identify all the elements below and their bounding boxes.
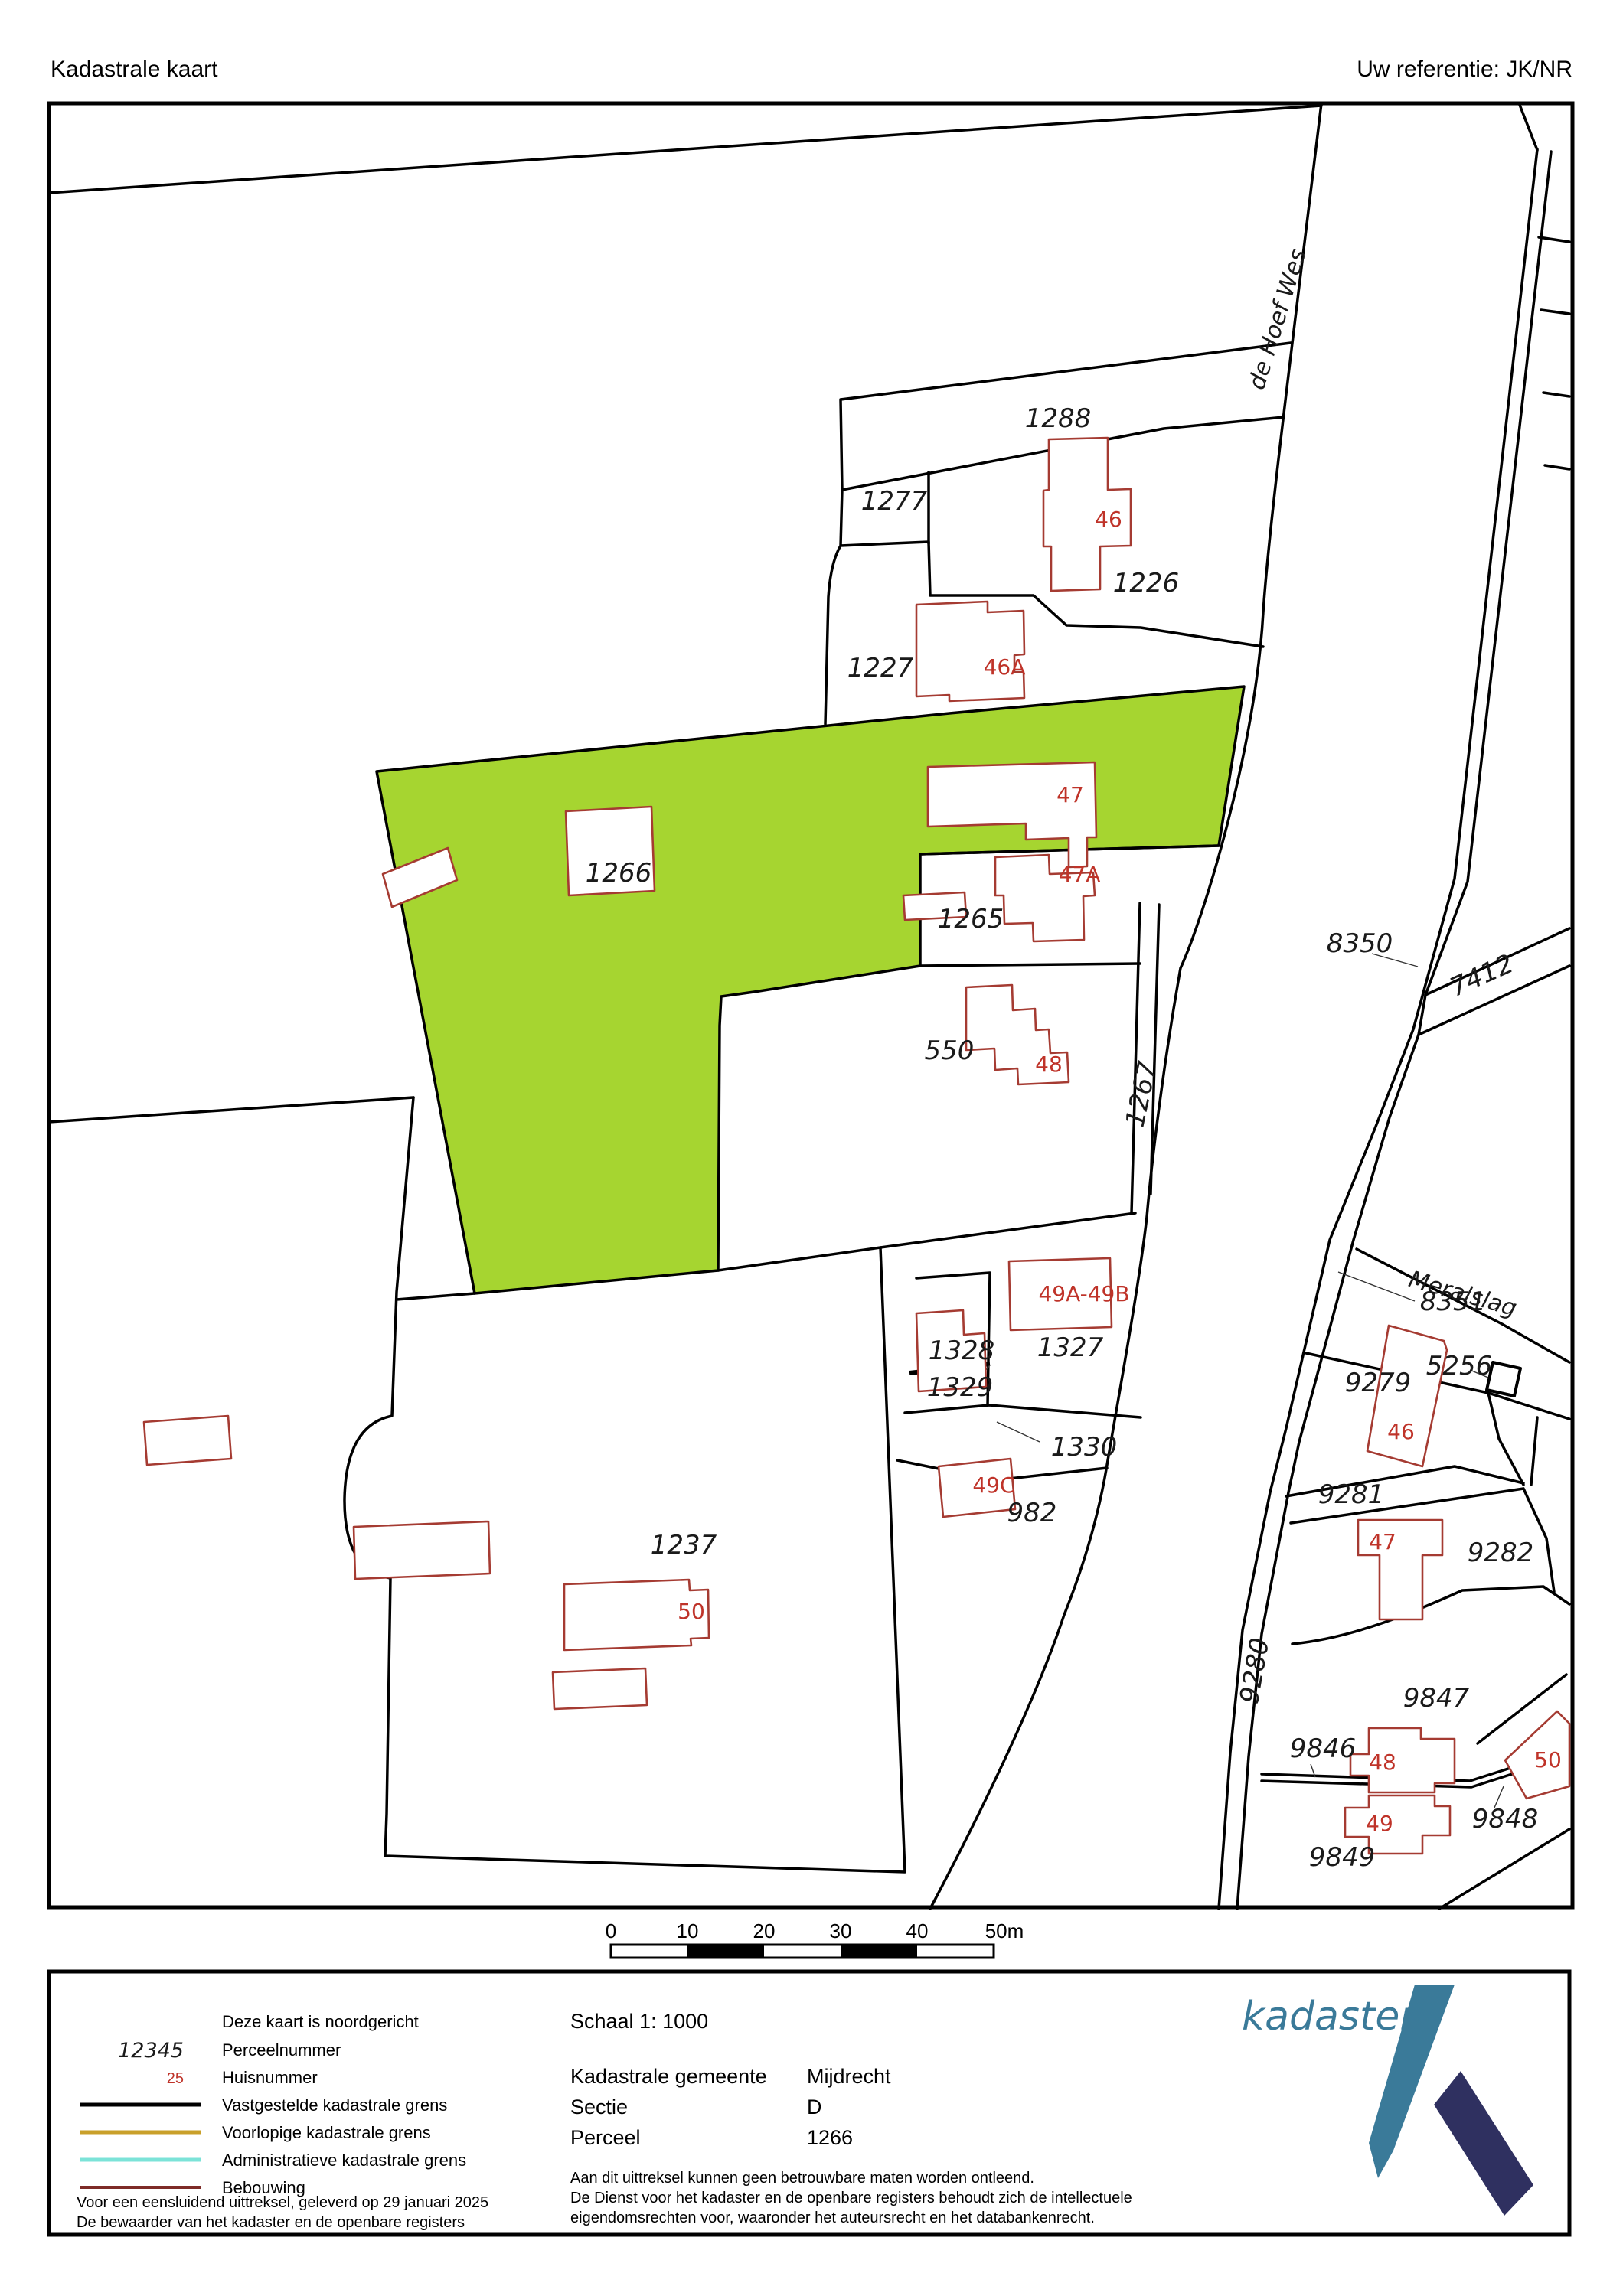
parcel-9849-9848-divider (1439, 1829, 1569, 1909)
parcel-label: 1237 (651, 1530, 717, 1561)
building-46A (916, 602, 1024, 701)
scale-tick: 40 (906, 1919, 929, 1942)
house-number: 46 (1095, 507, 1122, 532)
disclaimer-line-1: Aan dit uittreksel kunnen geen betrouwba… (570, 2170, 1034, 2187)
parcel-label: 9281 (1318, 1479, 1385, 1510)
parcel-label: 9846 (1290, 1733, 1357, 1764)
legend: Deze kaart is noordgericht 12345 Perceel… (77, 2012, 488, 2231)
legend-footer-2: De bewaarder van het kadaster en de open… (77, 2214, 465, 2231)
parcel-label: 1277 (861, 486, 928, 517)
parcel-boundaries (49, 103, 1569, 1909)
building-small-1237 (553, 1668, 647, 1709)
parcel-label: 1329 (927, 1372, 994, 1403)
perceel-value: 1266 (807, 2126, 853, 2149)
legend-item-vastgestelde: Vastgestelde kadastrale grens (222, 2095, 447, 2115)
legend-item-voorlopige: Voorlopige kadastrale grens (222, 2123, 431, 2142)
parcel-label: 1227 (847, 653, 914, 683)
sectie-value: D (807, 2095, 822, 2118)
parcel-label: 1265 (938, 904, 1004, 934)
scale-tick: 0 (606, 1919, 616, 1942)
scale-tick: 30 (830, 1919, 852, 1942)
page-title: Kadastrale kaart (51, 57, 218, 82)
parcel-label: 9282 (1468, 1538, 1534, 1568)
house-number: 50 (1534, 1747, 1562, 1773)
highlighted-parcel-1266[interactable] (377, 687, 1244, 1293)
parcel-label: 1226 (1113, 568, 1180, 598)
street-label-de-hoef: de Hoef Wes (1243, 246, 1311, 393)
parcel-label: 8351 (1420, 1287, 1487, 1317)
map-frame (49, 103, 1572, 1907)
scale-tick: 20 (753, 1919, 776, 1942)
parcel-label: 550 (925, 1035, 975, 1066)
gemeente-label: Kadastrale gemeente (570, 2065, 767, 2088)
reference-label: Uw referentie: JK/NR (1357, 57, 1572, 82)
house-number: 49C (972, 1473, 1014, 1498)
house-number: 50 (678, 1599, 705, 1624)
north-note: Deze kaart is noordgericht (222, 2012, 419, 2031)
parcel-label: 9847 (1403, 1683, 1470, 1714)
left-parcel-divider (49, 1097, 413, 1122)
house-number: 46 (1387, 1419, 1415, 1444)
kadaster-logo-stroke-icon (1434, 2071, 1533, 2216)
house-number: 46A (984, 654, 1026, 680)
parcel-label: 1266 (586, 858, 652, 889)
parcel-label: 1330 (1051, 1432, 1118, 1463)
parcel-label: 9849 (1309, 1842, 1376, 1873)
kadaster-logo: kadaster (1242, 1985, 1533, 2216)
gemeente-value: Mijdrecht (807, 2065, 891, 2088)
buildings (144, 438, 1569, 1854)
sectie-label: Sectie (570, 2095, 628, 2118)
perceel-label: Perceel (570, 2126, 641, 2149)
house-number: 47 (1369, 1529, 1396, 1554)
house-number: 49A-49B (1038, 1281, 1129, 1306)
kadaster-logo-text: kadaster (1242, 1994, 1419, 2040)
sample-house-number: 25 (167, 2070, 184, 2087)
parcel-label: 9279 (1345, 1368, 1412, 1398)
parcel-label: 982 (1007, 1498, 1057, 1528)
parcel-label: 8350 (1327, 928, 1393, 959)
parcel-labels: 1288 1277 1226 1227 1266 1265 550 1267 8… (586, 403, 1539, 1873)
scale-text: Schaal 1: 1000 (570, 2010, 708, 2033)
parcel-1267-strip (1132, 903, 1159, 1213)
house-number: 47A (1059, 862, 1101, 887)
cadastral-map-page: Kadastrale kaart Uw referentie: JK/NR (0, 0, 1623, 2296)
parcel-label: 5256 (1426, 1351, 1493, 1381)
house-number: 48 (1369, 1750, 1396, 1775)
parcel-label: 9848 (1472, 1804, 1539, 1835)
legend-item-huisnummer: Huisnummer (222, 2068, 318, 2087)
parcel-label: 1328 (929, 1336, 995, 1366)
scale-bar: 0 10 20 30 40 50m (606, 1919, 1024, 1958)
disclaimer-line-3: eigendomsrechten voor, waaronder het aut… (570, 2210, 1095, 2226)
right-edge-parcels (1520, 105, 1569, 469)
scale-tick: 50m (985, 1919, 1024, 1942)
scale-tick: 10 (677, 1919, 699, 1942)
house-number: 48 (1035, 1052, 1063, 1077)
map-info: Schaal 1: 1000 Kadastrale gemeente Mijdr… (570, 2010, 1132, 2226)
legend-item-administratieve: Administratieve kadastrale grens (222, 2151, 466, 2170)
sample-parcel-number: 12345 (118, 2039, 184, 2063)
parcel-label: 1327 (1037, 1332, 1104, 1363)
legend-footer-1: Voor een eensluidend uittreksel, gelever… (77, 2194, 488, 2211)
legend-item-perceelnummer: Perceelnummer (222, 2040, 341, 2060)
parcel-9847-bounds (1292, 1587, 1569, 1743)
disclaimer-line-2: De Dienst voor het kadaster en de openba… (570, 2190, 1132, 2206)
parcel-label: 1288 (1025, 403, 1092, 434)
building-left (144, 1416, 231, 1465)
house-number: 47 (1056, 782, 1084, 807)
building-long-1237 (354, 1521, 490, 1579)
house-number: 49 (1366, 1811, 1393, 1836)
